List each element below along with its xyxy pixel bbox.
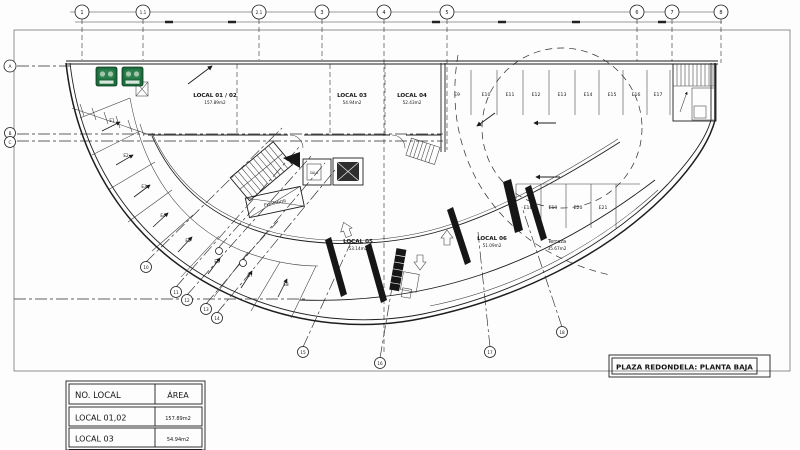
table-header-no-local: NO. LOCAL xyxy=(75,391,121,401)
grid-bubble-label: 14 xyxy=(214,316,220,321)
parking-labels: E9 E10 E11 E12 E13 E14 E15 E16 E17 E18 E… xyxy=(109,92,662,287)
room-labels: LOCAL 01 / 02 157.89m2 LOCAL 03 54.94m2 … xyxy=(193,93,566,251)
green-parking-signs xyxy=(96,67,143,86)
green-sign-icon xyxy=(122,67,143,86)
grid-bubble-label: 13 xyxy=(203,307,209,312)
grid-bubble-label: 18 xyxy=(559,330,565,335)
ramp-arrow xyxy=(188,66,212,84)
grid-bubble-label: 1 xyxy=(80,10,83,16)
sala-label: SALA xyxy=(310,171,319,175)
title-block: PLAZA REDONDELA: PLANTA BAJA xyxy=(609,355,770,377)
stall-label: E16 xyxy=(632,92,641,98)
local-03-label: LOCAL 03 xyxy=(337,93,367,99)
elevator-box: ELEVADOR xyxy=(245,186,304,217)
grid-bubble-label: 7 xyxy=(670,10,673,16)
grid-bubble-label: 5 xyxy=(445,10,448,16)
stall-label: E1 xyxy=(109,118,115,123)
local-03-area: 54.94m2 xyxy=(343,100,362,105)
court-stair-wedge xyxy=(406,138,440,164)
local-0102-label: LOCAL 01 / 02 xyxy=(193,93,237,99)
stall-label: E21 xyxy=(599,205,608,211)
stall-label: E13 xyxy=(558,92,567,98)
central-core: ELEVADOR SALA xyxy=(136,82,363,218)
stall-label: E17 xyxy=(654,92,663,98)
flow-arrow-diag xyxy=(477,113,495,126)
grid-bubble-label: 4 xyxy=(382,10,385,16)
stall-label: E12 xyxy=(532,92,541,98)
sala-box: SALA xyxy=(303,159,331,185)
stair-top-right xyxy=(673,64,716,121)
floor-plan-canvas: ELEVADOR SALA xyxy=(0,0,800,450)
sheet-title: PLAZA REDONDELA: PLANTA BAJA xyxy=(616,363,753,372)
elevator-shaft-box xyxy=(333,158,363,185)
stall-label: E2 xyxy=(123,153,129,158)
table-cell-area: 157.89m2 xyxy=(165,416,191,422)
terraza-area: 35.67m2 xyxy=(548,246,567,251)
grid-bubble-label: 8 xyxy=(719,10,722,16)
local-06-area: 51.09m2 xyxy=(483,243,502,248)
local-0102-area: 157.89m2 xyxy=(204,100,226,105)
table-cell-area: 54.94m2 xyxy=(167,437,189,443)
local-05-label: LOCAL 05 xyxy=(343,239,373,245)
hollow-arrow-up xyxy=(441,230,453,245)
parking-arc-stalls xyxy=(80,98,316,318)
green-sign-icon xyxy=(96,67,117,86)
grid-bubble-label: 6 xyxy=(635,10,638,16)
stall-label: E9 xyxy=(454,92,460,98)
grid-bubble-label: 10 xyxy=(143,265,149,270)
grid-bubble-label: 16 xyxy=(377,361,383,366)
table-cell-name: LOCAL 01,02 xyxy=(75,414,126,423)
local-04-label: LOCAL 04 xyxy=(397,93,427,99)
area-summary-table: NO. LOCAL ÁREA LOCAL 01,02 157.89m2 LOCA… xyxy=(66,381,205,450)
drawing-sheet: ELEVADOR SALA xyxy=(0,0,800,450)
grid-bubble-label: C xyxy=(9,140,12,145)
grid-leader-lines xyxy=(14,19,721,358)
stall-label: E4 xyxy=(160,213,166,218)
elevator-label: ELEVADOR xyxy=(263,198,286,208)
stall-label: E19 xyxy=(549,205,558,211)
stall-label: E3 xyxy=(141,184,147,189)
stall-label: E11 xyxy=(506,92,515,98)
stall-label: E10 xyxy=(482,92,491,98)
stall-label: E18 xyxy=(524,205,533,211)
table-cell-name: LOCAL 03 xyxy=(75,435,114,444)
hollow-arrow-down xyxy=(414,255,426,270)
local-05-area: 53.14m2 xyxy=(349,246,368,251)
stall-label: E7 xyxy=(247,273,253,278)
grid-bubble-label: 3 xyxy=(320,10,323,16)
grid-bubble-label: 15 xyxy=(300,350,306,355)
sheet-frame xyxy=(14,9,790,371)
grid-bubble-label: 17 xyxy=(487,350,493,355)
grid-bubble-label: 12 xyxy=(184,298,190,303)
hollow-arrow-up-2 xyxy=(338,220,354,238)
stall-label: E20 xyxy=(574,205,583,211)
local-04-area: 52.43m2 xyxy=(403,100,422,105)
stall-label: E5 xyxy=(185,238,191,243)
grid-bubble-label: 1.1 xyxy=(140,10,147,15)
stall-label: E8 xyxy=(283,282,289,287)
terraza-label: Terraza xyxy=(547,239,566,245)
grid-bubble-label: B xyxy=(9,131,12,136)
table-header-area: ÁREA xyxy=(167,389,189,400)
stall-label: E14 xyxy=(584,92,593,98)
local-06-label: LOCAL 06 xyxy=(477,236,507,242)
grid-bubble-label: 2.1 xyxy=(256,10,263,15)
grid-bubble-label: 11 xyxy=(173,290,179,295)
stall-label: E15 xyxy=(608,92,617,98)
stall-label: E6 xyxy=(214,259,220,264)
